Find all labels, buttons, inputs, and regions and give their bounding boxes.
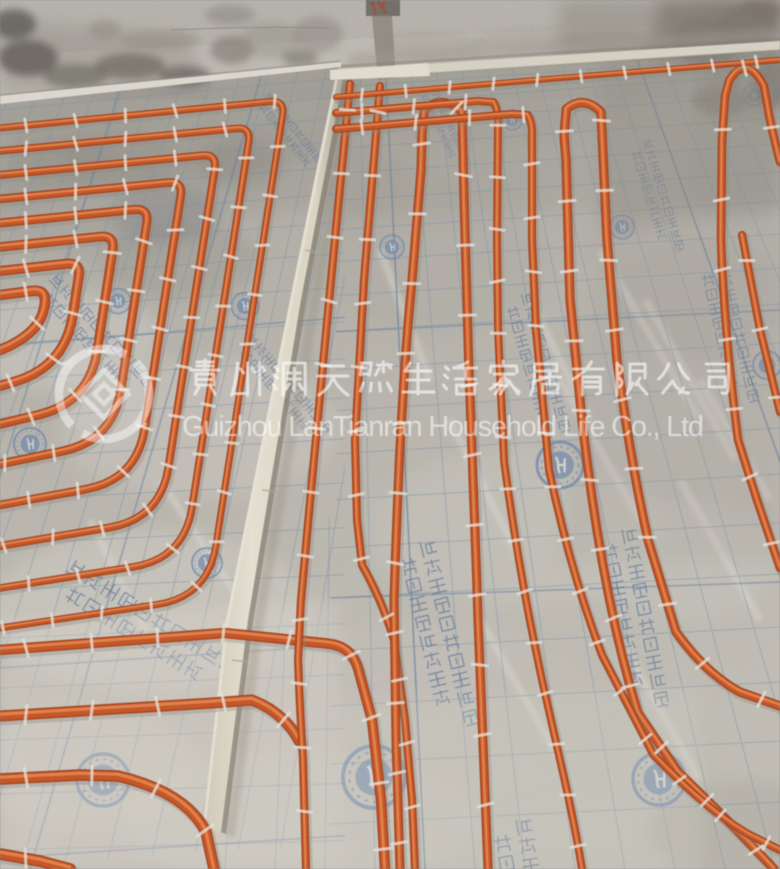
svg-text:Guizhou LanTianran Household L: Guizhou LanTianran Household Life Co., L… <box>182 411 704 443</box>
